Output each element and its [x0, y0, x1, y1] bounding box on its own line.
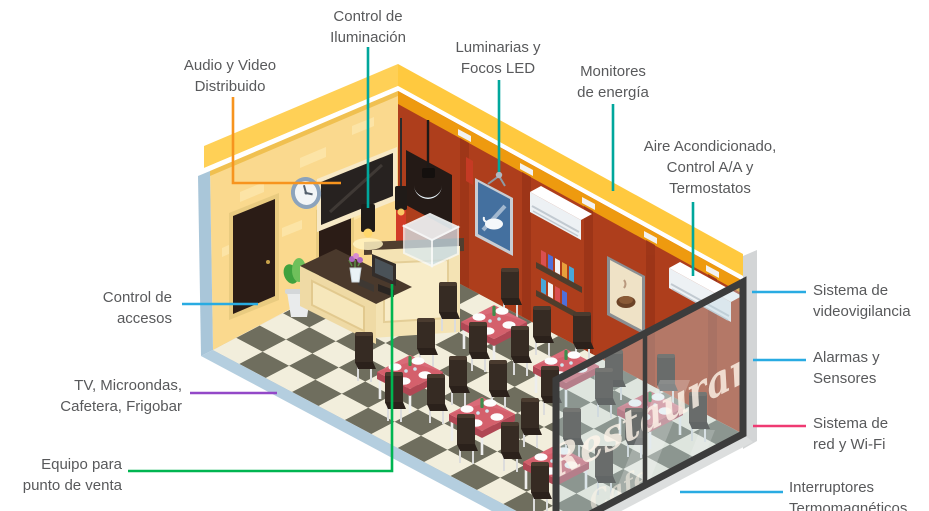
red-accent: [466, 157, 473, 185]
label-alarmas: Alarmas y Sensores: [813, 347, 925, 389]
label-aire-acondicionado: Aire Acondicionado, Control A/A y Termos…: [610, 136, 810, 199]
infographic-canvas: Restaurant Cafe Control de Iluminación A…: [0, 0, 929, 511]
label-control-accesos: Control de accesos: [40, 287, 172, 329]
label-interruptores: Interruptores Termomagnéticos: [789, 477, 929, 511]
label-videovigilancia: Sistema de videovigilancia: [813, 280, 925, 322]
entrance-door: [229, 193, 279, 320]
label-monitores: Monitores de energía: [543, 61, 683, 103]
label-red-wifi: Sistema de red y Wi-Fi: [813, 413, 925, 455]
label-equipo-pos: Equipo para punto de venta: [6, 454, 122, 496]
label-control-iluminacion: Control de Iluminación: [298, 6, 438, 48]
label-audio-video: Audio y Video Distribuido: [158, 55, 302, 97]
label-tv-microondas: TV, Microondas, Cafetera, Frigobar: [26, 375, 182, 417]
